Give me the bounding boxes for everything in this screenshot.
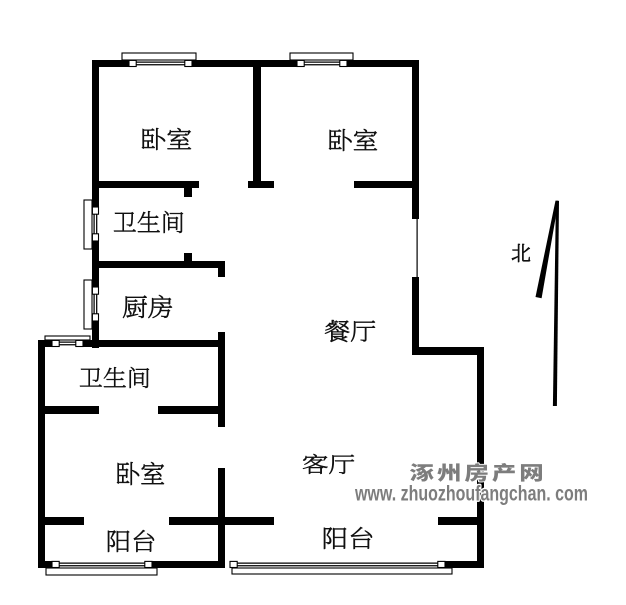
svg-text:www. zhuozhoufangchan. com: www. zhuozhoufangchan. com: [354, 483, 588, 506]
